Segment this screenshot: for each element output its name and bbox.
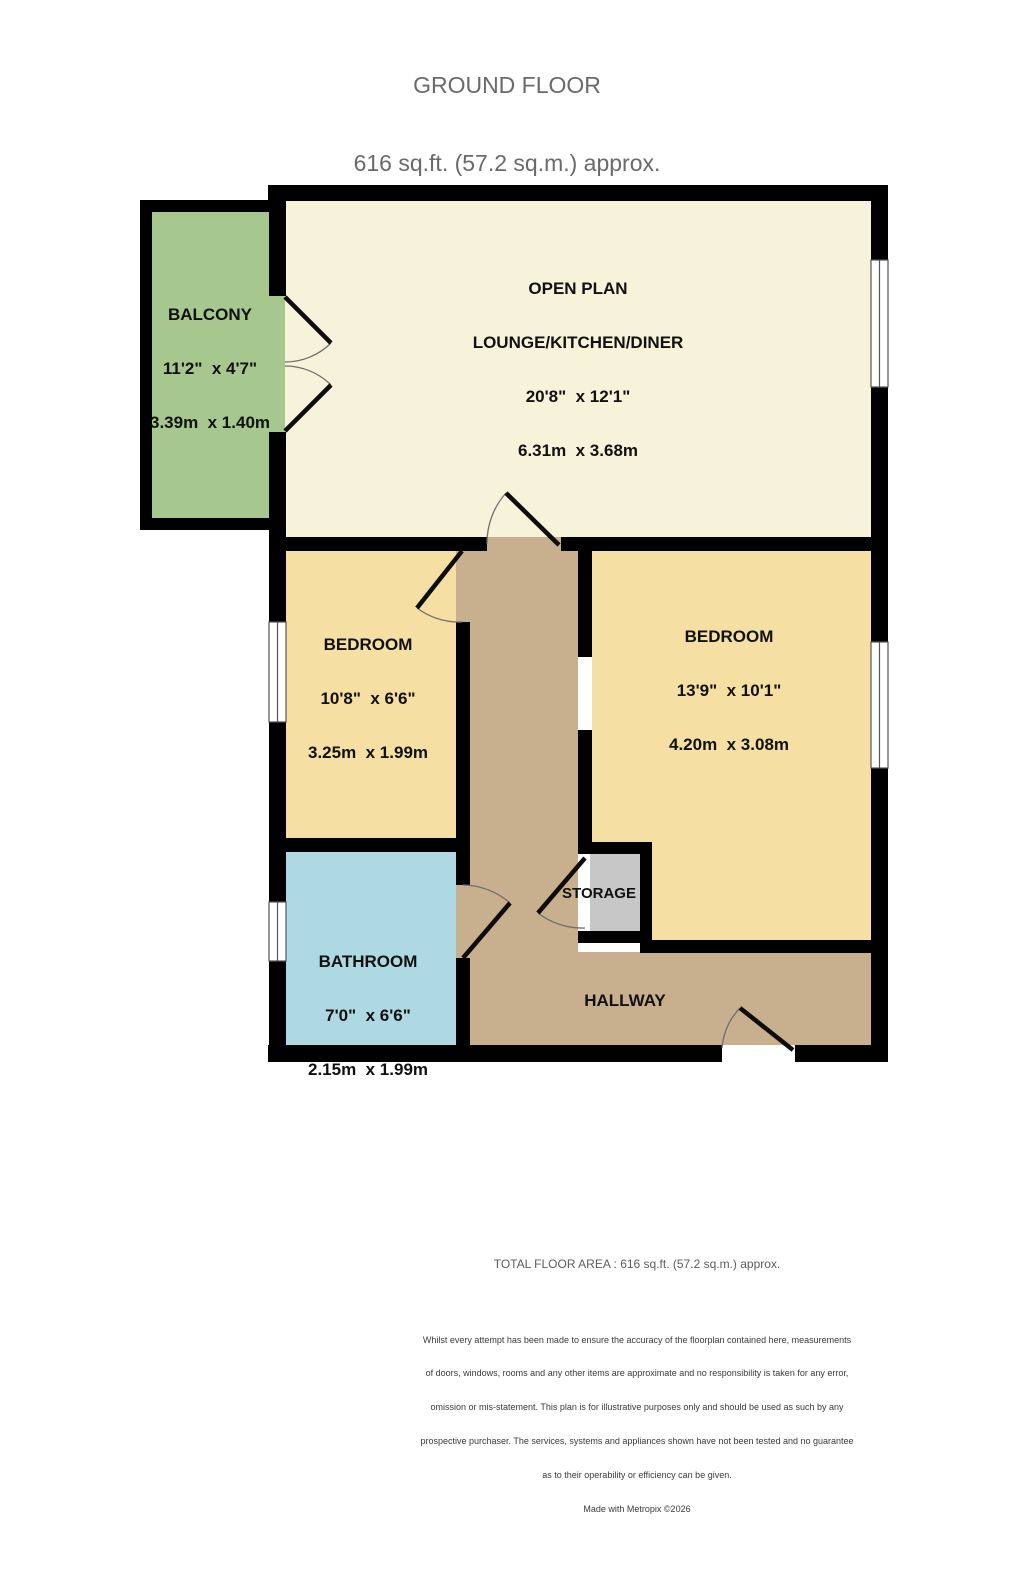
disclaimer-line-5: as to their operability or efficiency ca… [420, 1470, 853, 1481]
disclaimer-line-3: omission or mis-statement. This plan is … [420, 1402, 853, 1413]
wall-bedroom-right-b [578, 730, 592, 842]
hallway-name: HALLWAY [584, 992, 666, 1010]
footer: TOTAL FLOOR AREA : 616 sq.ft. (57.2 sq.m… [420, 1221, 853, 1574]
wall-corridor-left-a [456, 622, 470, 838]
bedroom-right-name: BEDROOM [669, 628, 789, 646]
bathroom-metric: 2.15m x 1.99m [308, 1061, 428, 1079]
lounge-imperial: 20'8" x 12'1" [473, 388, 684, 406]
bathroom-imperial: 7'0" x 6'6" [308, 1007, 428, 1025]
wall-bathroom-divider [285, 838, 470, 852]
room-label-bedroom-right: BEDROOM 13'9" x 10'1" 4.20m x 3.08m [669, 592, 789, 790]
wall-balcony-top [140, 200, 269, 212]
bedroom-right-metric: 4.20m x 3.08m [669, 736, 789, 754]
wall-bedroom-right-a [578, 537, 592, 657]
disclaimer-line-2: of doors, windows, rooms and any other i… [420, 1368, 853, 1379]
bedroom-right-imperial: 13'9" x 10'1" [669, 682, 789, 700]
window-bedroom-right [871, 642, 888, 768]
room-label-hallway: HALLWAY [584, 956, 666, 1046]
window-lounge [871, 260, 888, 387]
bedroom-left-imperial: 10'8" x 6'6" [308, 690, 428, 708]
disclaimer-line-1: Whilst every attempt has been made to en… [420, 1335, 853, 1346]
wall-left-d [269, 961, 286, 1062]
wall-storage-right [640, 842, 652, 943]
window-bedroom-left [269, 622, 286, 722]
window-bathroom [269, 902, 286, 961]
balcony-imperial: 11'2" x 4'7" [150, 360, 270, 378]
disclaimer-line-4: prospective purchaser. The services, sys… [420, 1436, 853, 1447]
wall-corridor-left-c [456, 958, 470, 1045]
wall-lounge-divider-left [285, 537, 487, 551]
wall-right-c [871, 768, 888, 1062]
plan-title-line2: 616 sq.ft. (57.2 sq.m.) approx. [354, 150, 661, 176]
wall-right-a [871, 185, 888, 260]
lounge-name-line2: LOUNGE/KITCHEN/DINER [473, 334, 684, 352]
lounge-metric: 6.31m x 3.68m [473, 442, 684, 460]
made-with-credit: Made with Metropix ©2026 [420, 1504, 853, 1515]
wall-left-c [269, 722, 286, 902]
room-label-balcony: BALCONY 11'2" x 4'7" 3.39m x 1.40m [150, 270, 270, 468]
bathroom-name: BATHROOM [308, 953, 428, 971]
balcony-name: BALCONY [150, 306, 270, 324]
lounge-name-line1: OPEN PLAN [473, 280, 684, 298]
wall-corridor-left-b [456, 852, 470, 885]
room-label-storage: STORAGE [562, 849, 636, 939]
room-label-bedroom-left: BEDROOM 10'8" x 6'6" 3.25m x 1.99m [308, 600, 428, 798]
storage-name: STORAGE [562, 885, 636, 903]
plan-title: GROUND FLOOR 616 sq.ft. (57.2 sq.m.) app… [354, 20, 661, 228]
wall-left-b [269, 432, 286, 622]
room-label-lounge: OPEN PLAN LOUNGE/KITCHEN/DINER 20'8" x 1… [473, 244, 684, 496]
bedroom-left-metric: 3.25m x 1.99m [308, 744, 428, 762]
wall-right-b [871, 387, 888, 642]
bedroom-left-name: BEDROOM [308, 636, 428, 654]
balcony-metric: 3.39m x 1.40m [150, 414, 270, 432]
room-balcony-door-band [269, 296, 285, 432]
total-floor-area: TOTAL FLOOR AREA : 616 sq.ft. (57.2 sq.m… [420, 1257, 853, 1272]
room-label-bathroom: BATHROOM 7'0" x 6'6" 2.15m x 1.99m [308, 917, 428, 1115]
disclaimer: Whilst every attempt has been made to en… [420, 1312, 853, 1538]
plan-title-line1: GROUND FLOOR [354, 72, 661, 98]
wall-balcony-bottom [140, 518, 269, 530]
floorplan-page: GROUND FLOOR 616 sq.ft. (57.2 sq.m.) app… [0, 0, 1020, 1302]
wall-left-a [269, 185, 286, 296]
wall-bedroom-right-bottom [640, 940, 871, 953]
wall-lounge-divider-right [561, 537, 871, 551]
